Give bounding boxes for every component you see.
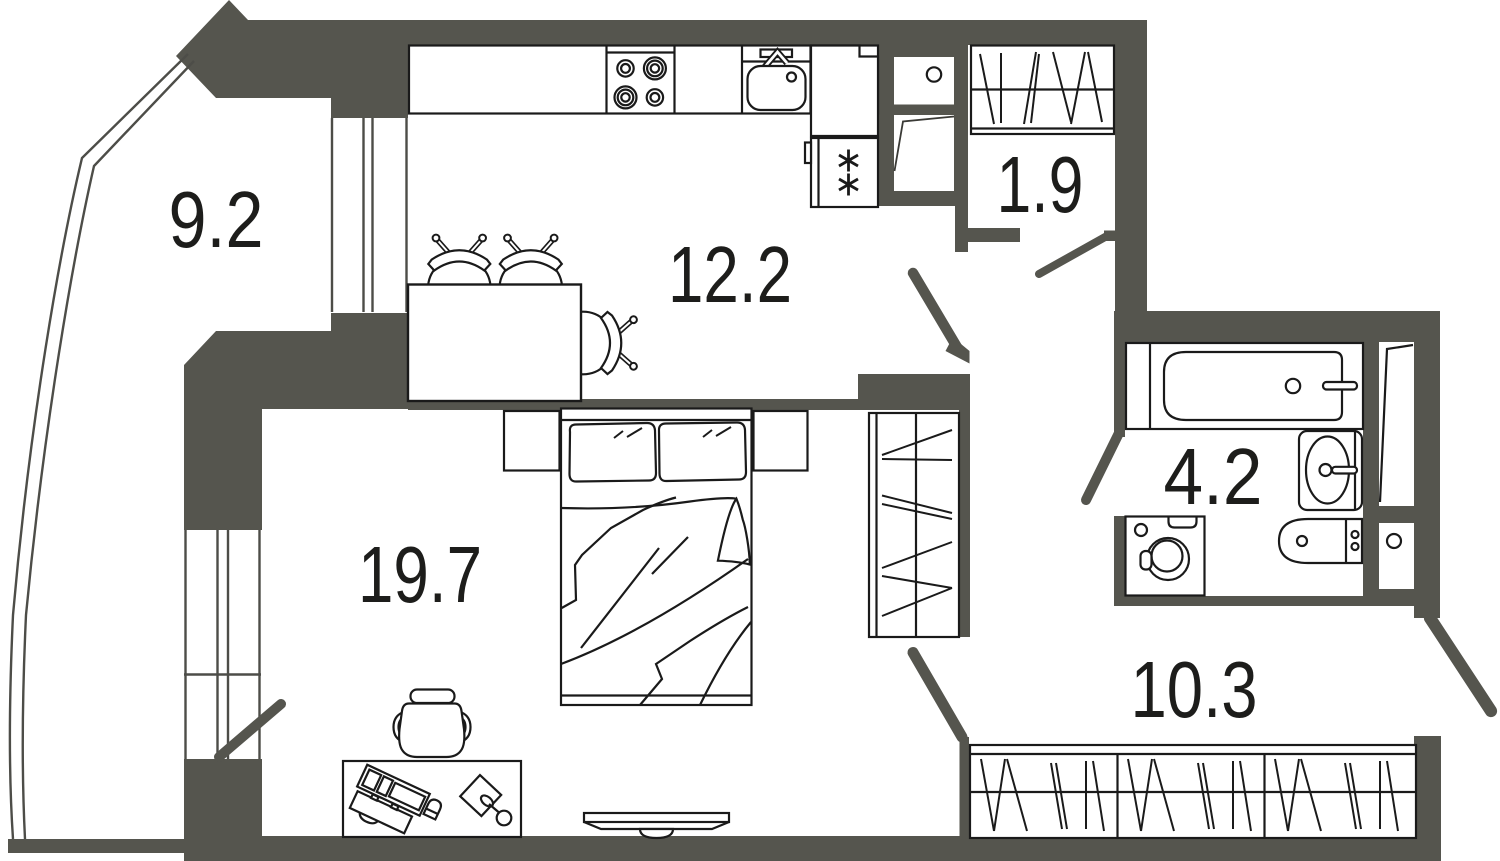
svg-text:19.7: 19.7	[358, 530, 482, 619]
svg-text:12.2: 12.2	[668, 230, 792, 319]
svg-text:10.3: 10.3	[1131, 645, 1258, 734]
svg-text:1.9: 1.9	[997, 140, 1084, 229]
svg-text:4.2: 4.2	[1164, 432, 1263, 521]
svg-text:9.2: 9.2	[169, 175, 264, 264]
